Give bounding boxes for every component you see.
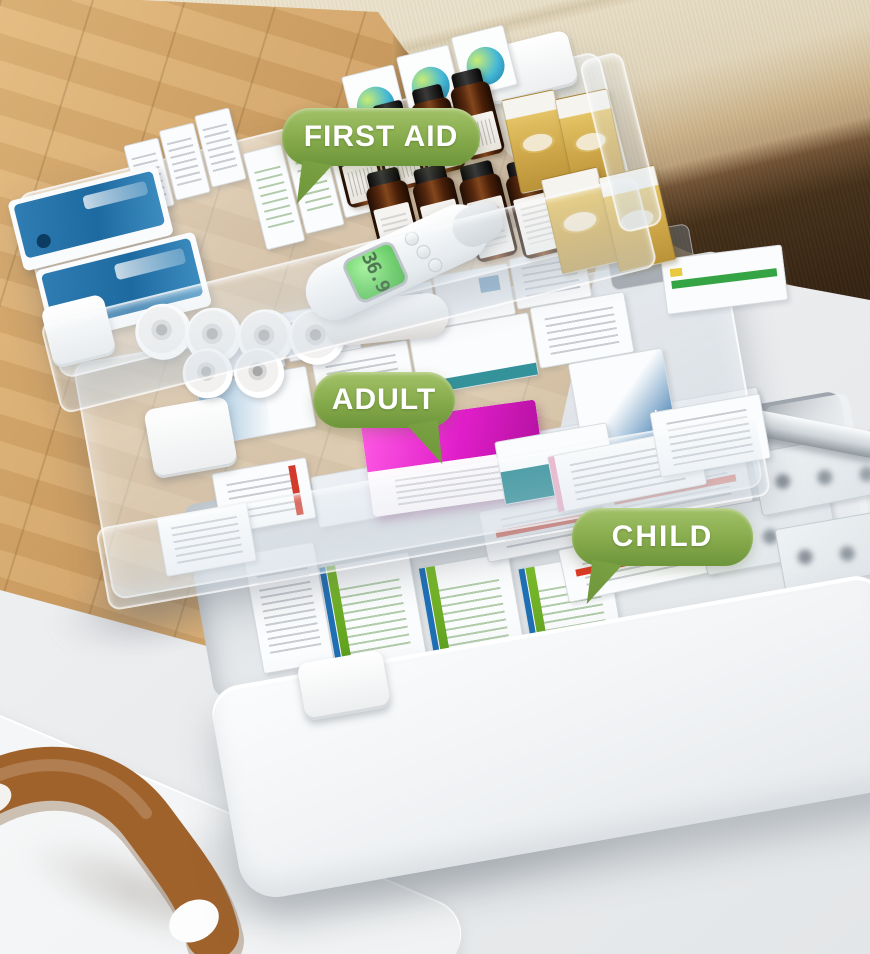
label-text: FIRST AID bbox=[304, 120, 459, 154]
blister-dots bbox=[797, 548, 814, 565]
label-bubble-child: CHILD bbox=[572, 508, 753, 566]
product-photo: ⚕ bbox=[0, 0, 870, 954]
green-band bbox=[671, 268, 777, 289]
yellow-box-plate bbox=[518, 129, 558, 157]
label-bubble-adult: ADULT bbox=[313, 372, 455, 428]
tray-handle bbox=[143, 396, 238, 480]
label-text: ADULT bbox=[332, 383, 436, 417]
label-bubble-first-aid: FIRST AID bbox=[282, 108, 480, 166]
blister-dots bbox=[774, 472, 792, 490]
yellow-mark bbox=[670, 267, 683, 277]
label-text: CHILD bbox=[612, 520, 714, 554]
